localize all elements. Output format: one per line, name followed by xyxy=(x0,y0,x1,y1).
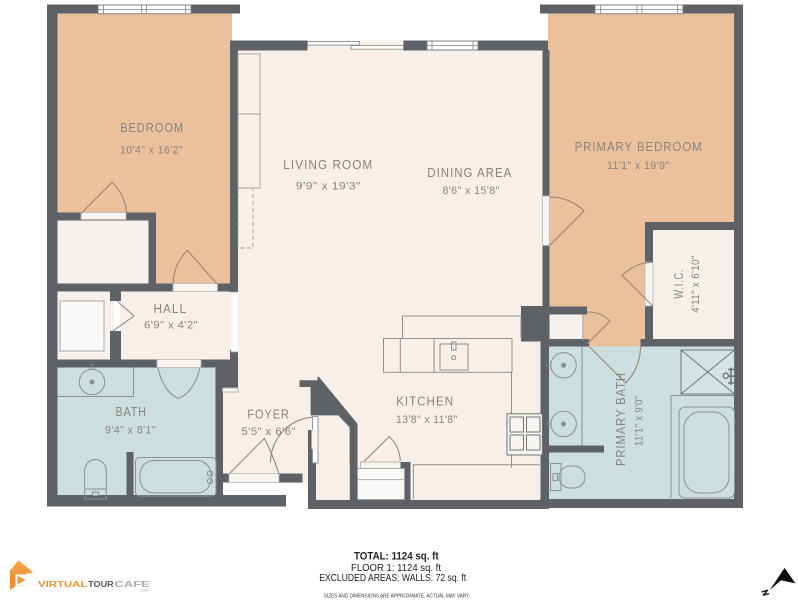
svg-text:LIVING ROOM: LIVING ROOM xyxy=(283,158,373,172)
svg-text:VIRTUAL: VIRTUAL xyxy=(38,579,88,589)
svg-text:DINING AREA: DINING AREA xyxy=(427,166,512,180)
svg-text:11'1" x 9'0": 11'1" x 9'0" xyxy=(634,395,646,446)
svg-text:SIZES AND DIMENSIONS ARE APPRO: SIZES AND DIMENSIONS ARE APPROXIMATE, AC… xyxy=(324,593,470,599)
svg-text:PRIMARY BEDROOM: PRIMARY BEDROOM xyxy=(575,140,703,154)
svg-text:11'1" x 19'9": 11'1" x 19'9" xyxy=(607,160,670,172)
svg-text:TOUR: TOUR xyxy=(88,579,114,589)
svg-text:4'11" x 6'10": 4'11" x 6'10" xyxy=(690,255,702,313)
svg-text:9'4" x 8'1": 9'4" x 8'1" xyxy=(105,424,156,436)
svg-text:FOYER: FOYER xyxy=(247,408,290,422)
svg-text:BATH: BATH xyxy=(115,405,147,419)
svg-text:13'8" x 11'8": 13'8" x 11'8" xyxy=(396,414,458,426)
svg-text:8'6" x 15'8": 8'6" x 15'8" xyxy=(442,185,500,197)
svg-text:6'9" x 4'2": 6'9" x 4'2" xyxy=(144,320,198,332)
svg-text:KITCHEN: KITCHEN xyxy=(396,395,454,409)
svg-text:HALL: HALL xyxy=(154,302,188,316)
svg-text:5'5" x 6'6": 5'5" x 6'6" xyxy=(241,426,296,438)
svg-text:TOTAL: 1124 sq. ft: TOTAL: 1124 sq. ft xyxy=(354,551,439,563)
svg-text:W.I.C.: W.I.C. xyxy=(672,269,686,299)
svg-text:BEDROOM: BEDROOM xyxy=(120,121,184,135)
svg-text:.COM: .COM xyxy=(139,588,148,592)
svg-text:10'4" x 16'2": 10'4" x 16'2" xyxy=(120,145,183,157)
svg-text:9'9" x 19'3": 9'9" x 19'3" xyxy=(296,181,361,193)
svg-text:PRIMARY BATH: PRIMARY BATH xyxy=(614,372,628,466)
svg-text:EXCLUDED AREAS: WALLS: 72 sq.: EXCLUDED AREAS: WALLS: 72 sq. ft xyxy=(319,573,466,584)
